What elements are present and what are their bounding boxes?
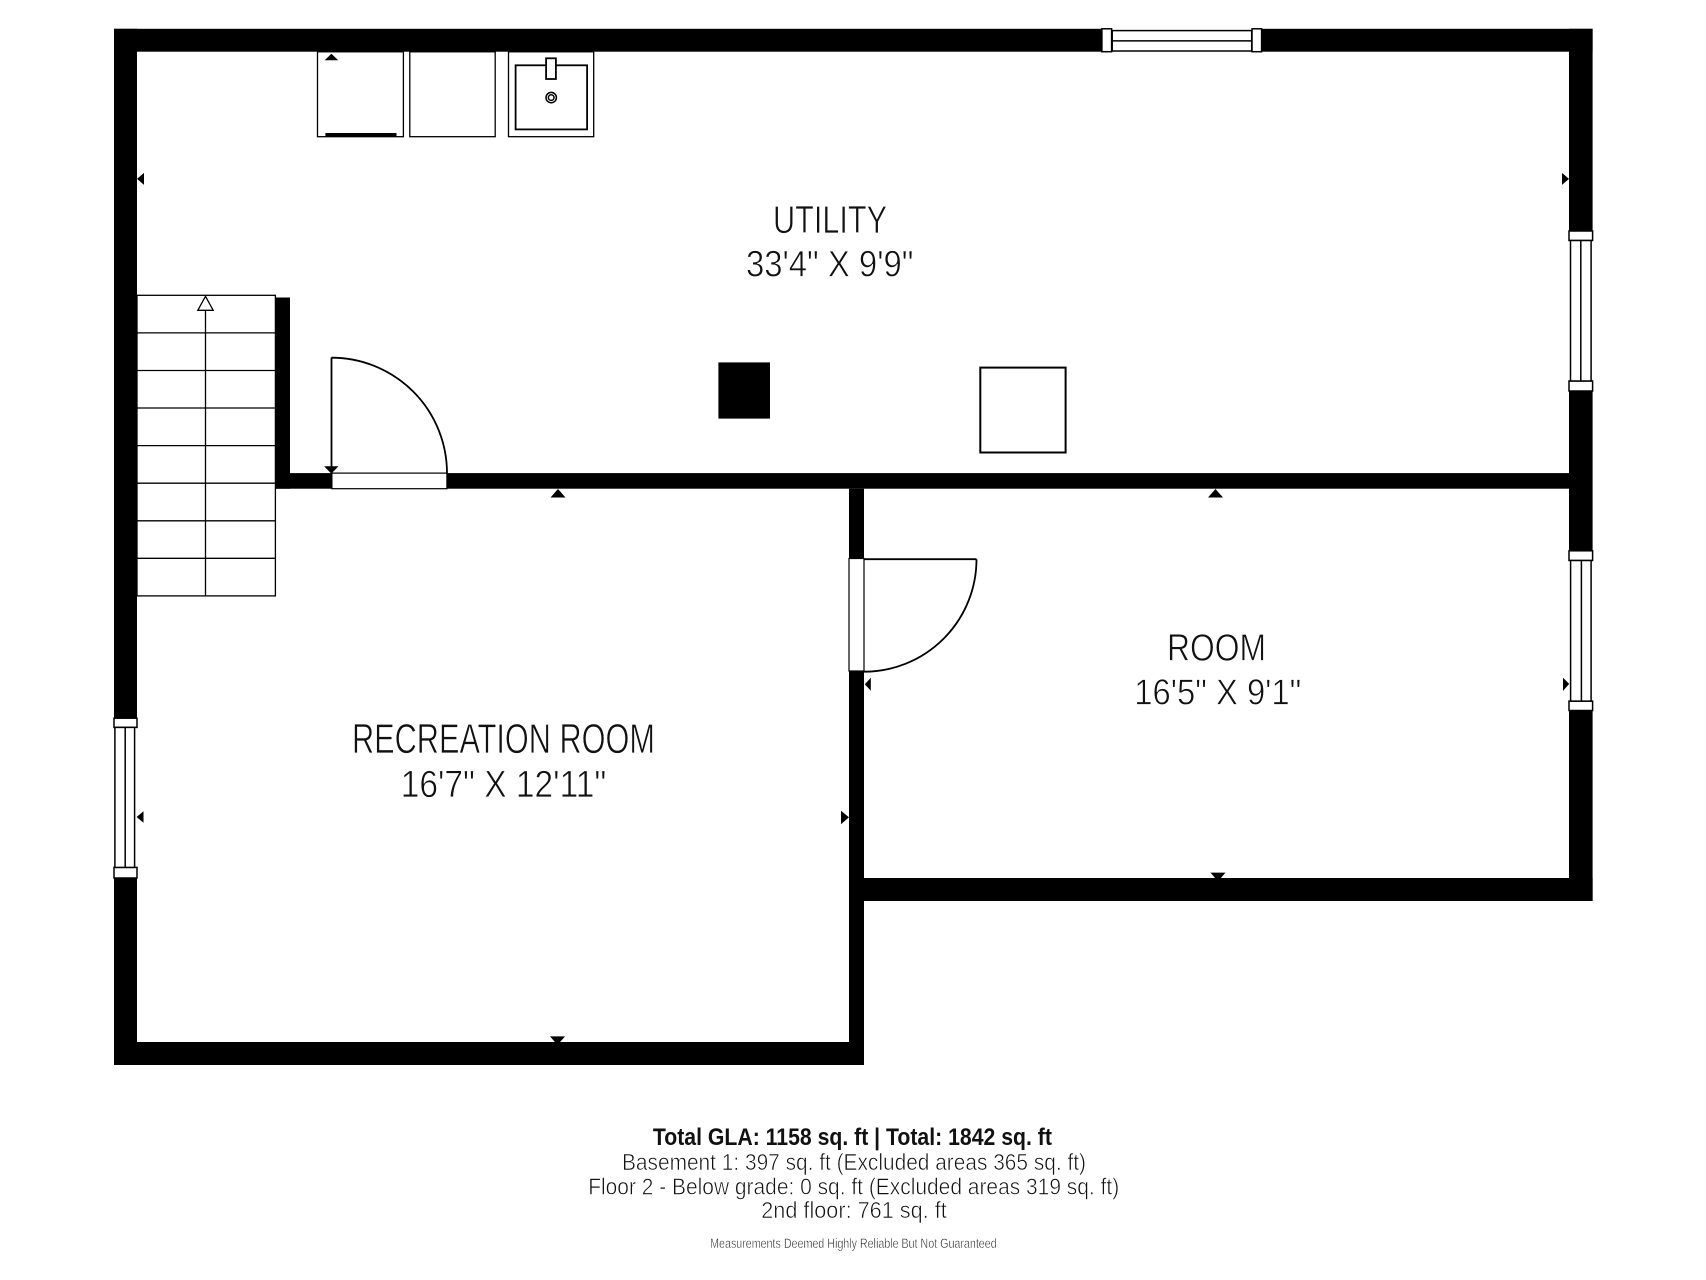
svg-text:Total GLA: 1158 sq. ft | Total: Total GLA: 1158 sq. ft | Total: 1842 sq.… xyxy=(653,1124,1052,1151)
svg-text:16'7" X 12'11": 16'7" X 12'11" xyxy=(401,763,607,806)
svg-text:2nd floor: 761 sq. ft: 2nd floor: 761 sq. ft xyxy=(761,1197,947,1223)
svg-text:Measurements Deemed Highly Rel: Measurements Deemed Highly Reliable But … xyxy=(710,1236,997,1251)
svg-text:UTILITY: UTILITY xyxy=(773,199,887,242)
svg-text:Floor 2 - Below grade: 0 sq. f: Floor 2 - Below grade: 0 sq. ft (Exclude… xyxy=(588,1173,1119,1199)
svg-text:Basement 1: 397 sq. ft (Exclud: Basement 1: 397 sq. ft (Excluded areas 3… xyxy=(622,1149,1086,1175)
svg-text:ROOM: ROOM xyxy=(1167,627,1266,670)
svg-text:33'4" X 9'9": 33'4" X 9'9" xyxy=(746,243,914,284)
svg-text:16'5" X 9'1": 16'5" X 9'1" xyxy=(1134,673,1301,713)
svg-text:RECREATION ROOM: RECREATION ROOM xyxy=(352,715,655,762)
